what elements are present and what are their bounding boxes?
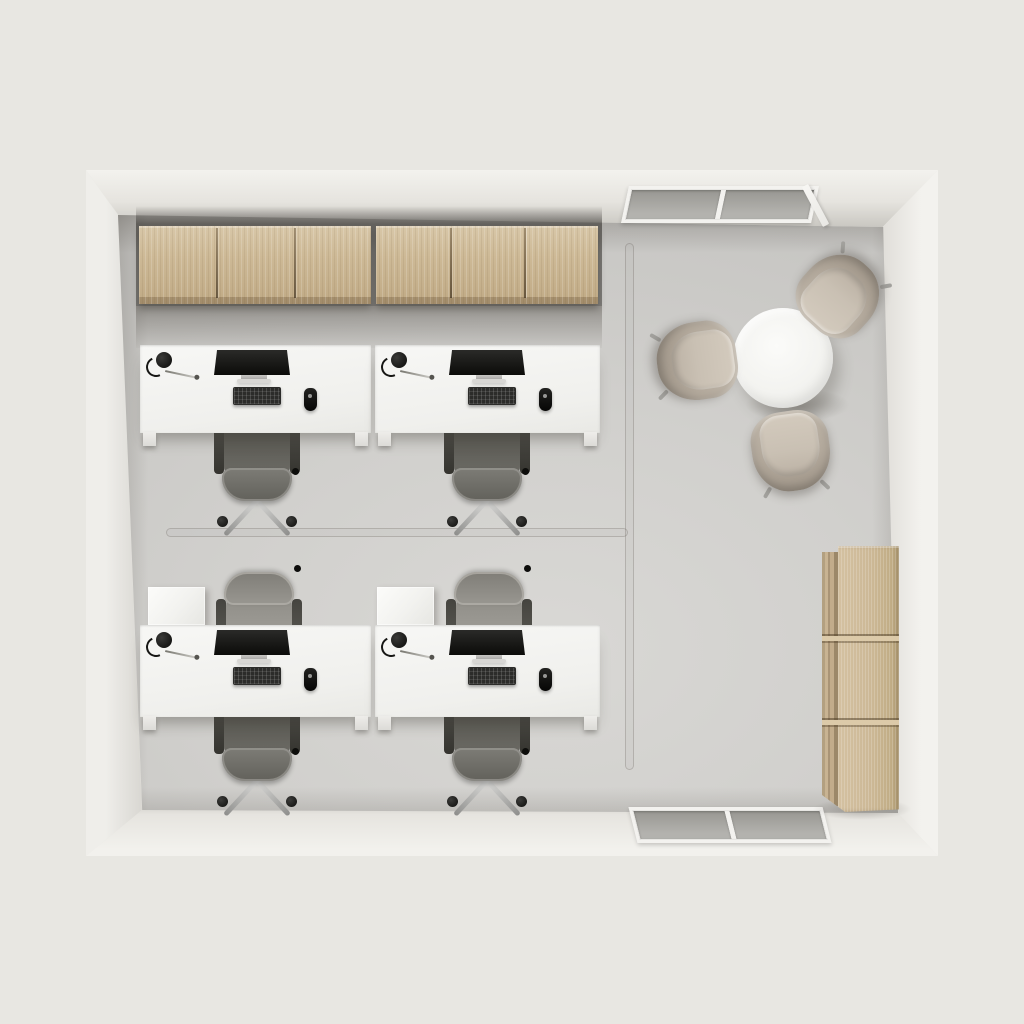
chair-backrest <box>454 572 524 605</box>
floor-seam-vertical <box>625 243 634 770</box>
desk-leg <box>378 716 391 730</box>
chair-wheel <box>447 516 458 527</box>
headset-earcup-icon <box>156 632 172 648</box>
desk-4 <box>375 625 600 717</box>
cabinet-door-seam <box>216 228 218 298</box>
mouse <box>304 668 317 691</box>
chair-backrest <box>224 572 294 605</box>
keyboard <box>468 667 516 685</box>
chair-adjust-knob <box>292 748 299 755</box>
window-pane <box>634 811 731 839</box>
chair-backrest <box>452 748 522 781</box>
chair-adjust-knob <box>292 468 299 475</box>
tall-cabinet <box>822 546 899 812</box>
chair-wheel <box>286 516 297 527</box>
task-chair-2 <box>444 424 530 528</box>
chair-wheel <box>516 516 527 527</box>
desk-2 <box>375 345 600 433</box>
headset-boom-icon <box>165 370 198 379</box>
chair-adjust-knob <box>524 565 531 572</box>
desk-leg <box>355 716 368 730</box>
desk-leg <box>584 716 597 730</box>
chair-adjust-knob <box>522 468 529 475</box>
chair-wheel <box>516 796 527 807</box>
chair-backrest <box>452 468 522 501</box>
pedestal-cube-1 <box>148 587 205 625</box>
task-chair-4 <box>444 704 530 808</box>
headset-earcup-icon <box>156 352 172 368</box>
pedestal-cube-2 <box>377 587 434 625</box>
cabinet-door-seam <box>524 228 526 298</box>
chair-armrest <box>444 428 454 474</box>
cabinet-door-seam <box>294 228 296 298</box>
chair-adjust-knob <box>522 748 529 755</box>
window-bottom <box>629 807 832 843</box>
tall-cabinet-shelf-edge <box>822 718 899 730</box>
chair-armrest <box>214 428 224 474</box>
office-room <box>0 0 1024 1024</box>
monitor-base <box>237 659 271 663</box>
desk-leg <box>355 432 368 446</box>
chair-backrest <box>222 748 292 781</box>
headset-earcup-icon <box>391 352 407 368</box>
keyboard <box>468 387 516 405</box>
monitor <box>214 630 290 655</box>
monitor-base <box>472 379 506 383</box>
tall-cabinet-face <box>838 546 899 812</box>
window-top <box>621 186 819 223</box>
chair-adjust-knob <box>294 565 301 572</box>
upper-cabinet-right <box>376 226 598 304</box>
lounge-chair-west <box>652 317 742 405</box>
desk-leg <box>143 432 156 446</box>
chair-wheel <box>217 516 228 527</box>
chair-wheel <box>447 796 458 807</box>
keyboard <box>233 667 281 685</box>
floor-seam-horizontal <box>166 528 628 537</box>
chair-wheel <box>217 796 228 807</box>
desk-3 <box>140 625 371 717</box>
task-chair-3 <box>214 704 300 808</box>
desk-leg <box>143 716 156 730</box>
lounge-chair-south <box>747 406 835 496</box>
headset-boom-icon <box>400 650 433 659</box>
headset-boom-icon <box>400 370 433 379</box>
mouse <box>304 388 317 411</box>
task-chair-1 <box>214 424 300 528</box>
tall-cabinet-shelf-edge <box>822 634 899 646</box>
monitor <box>214 350 290 375</box>
window-pane <box>719 190 814 219</box>
desk-leg <box>584 432 597 446</box>
window-pane <box>626 190 721 219</box>
headset-boom-icon <box>165 650 198 659</box>
monitor-base <box>237 379 271 383</box>
desk-leg <box>378 432 391 446</box>
mouse <box>539 388 552 411</box>
monitor-base <box>472 659 506 663</box>
cabinet-door-seam <box>450 228 452 298</box>
keyboard <box>233 387 281 405</box>
tall-cabinet-side <box>822 552 839 806</box>
chair-backrest <box>222 468 292 501</box>
chair-wheel <box>286 796 297 807</box>
monitor <box>449 630 525 655</box>
lounge-chair-foot <box>840 241 845 253</box>
monitor <box>449 350 525 375</box>
mouse <box>539 668 552 691</box>
desk-1 <box>140 345 371 433</box>
window-pane <box>729 811 826 839</box>
lounge-chair-foot <box>880 283 893 289</box>
upper-cabinet-left <box>139 226 371 304</box>
headset-earcup-icon <box>391 632 407 648</box>
